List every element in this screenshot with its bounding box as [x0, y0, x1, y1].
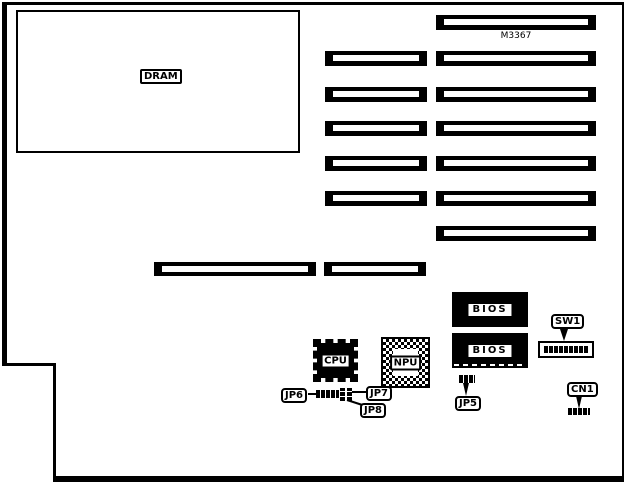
- expansion-slot: [325, 121, 427, 136]
- expansion-slot: [324, 262, 426, 276]
- cpu-label: CPU: [320, 353, 351, 368]
- expansion-slot: [436, 191, 596, 206]
- sw1-dip-switch-toggles: [544, 346, 588, 353]
- expansion-slot: [436, 226, 596, 241]
- cn1-connector: [568, 408, 590, 415]
- expansion-slot: [436, 156, 596, 171]
- sw1-callout-arrow: [560, 329, 568, 341]
- expansion-slot: [325, 87, 427, 102]
- jp5-label: JP5: [455, 396, 481, 411]
- expansion-slot: [436, 121, 596, 136]
- motherboard-diagram: DRAM M3367 BIOS BIOS SW1 CN1 JP5 CPU: [0, 0, 626, 482]
- expansion-slot: [436, 51, 596, 66]
- bios-chip-2-label: BIOS: [468, 345, 511, 357]
- board-edge-notch-h: [2, 363, 56, 366]
- jp6-jumper: [316, 390, 339, 398]
- board-edge-bottom: [53, 476, 624, 482]
- expansion-slot: [154, 262, 316, 276]
- board-edge-notch-v: [53, 363, 56, 478]
- expansion-slot: [325, 156, 427, 171]
- sw1-label: SW1: [551, 314, 584, 329]
- jp8-label: JP8: [360, 403, 386, 418]
- jp6-label: JP6: [281, 388, 307, 403]
- dram-label: DRAM: [140, 69, 182, 84]
- jp7-label: JP7: [366, 386, 392, 401]
- jp7-callout-line: [352, 391, 366, 393]
- jp5-jumper: [459, 375, 475, 383]
- expansion-slot: [325, 51, 427, 66]
- npu-chip: NPU: [381, 337, 430, 388]
- expansion-slot: [436, 15, 596, 30]
- expansion-slot: [325, 191, 427, 206]
- cpu-chip: CPU: [313, 339, 358, 382]
- bios-chip-2: BIOS: [452, 333, 528, 368]
- jp5-callout-line: [463, 383, 469, 396]
- bios-chip-2-socket-edge: [454, 364, 526, 366]
- expansion-slot: [436, 87, 596, 102]
- part-number-text: M3367: [436, 31, 596, 41]
- cn1-label: CN1: [567, 382, 598, 397]
- npu-label: NPU: [390, 355, 422, 370]
- board-edge-top: [2, 2, 624, 5]
- bios-chip-1-label: BIOS: [468, 304, 511, 316]
- sw1-dip-switch: [538, 341, 594, 358]
- board-edge-right: [622, 2, 624, 482]
- board-edge-left: [2, 2, 7, 365]
- bios-chip-1: BIOS: [452, 292, 528, 327]
